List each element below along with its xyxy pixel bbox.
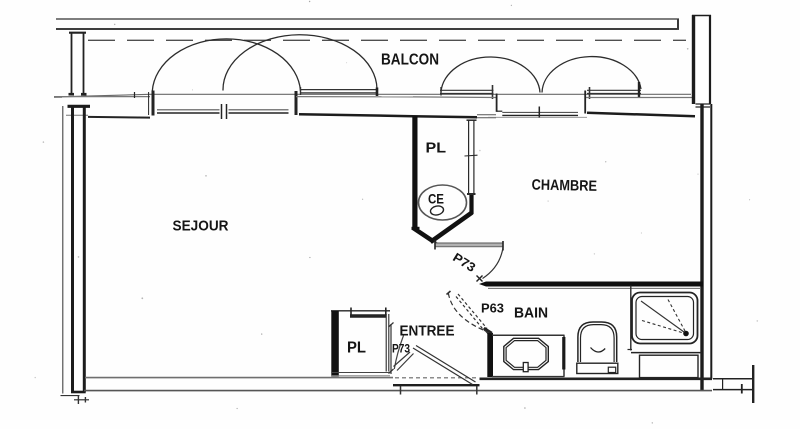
svg-text:BAIN: BAIN bbox=[514, 305, 548, 322]
svg-text:BALCON: BALCON bbox=[381, 52, 439, 69]
svg-text:PL: PL bbox=[347, 340, 366, 357]
svg-text:SEJOUR: SEJOUR bbox=[173, 218, 229, 235]
svg-text:PL: PL bbox=[426, 140, 447, 157]
svg-text:CHAMBRE: CHAMBRE bbox=[531, 177, 597, 195]
svg-text:ENTREE: ENTREE bbox=[400, 323, 455, 340]
svg-text:P63: P63 bbox=[481, 301, 504, 316]
svg-text:CE: CE bbox=[428, 192, 444, 207]
svg-text:P73: P73 bbox=[392, 342, 410, 356]
